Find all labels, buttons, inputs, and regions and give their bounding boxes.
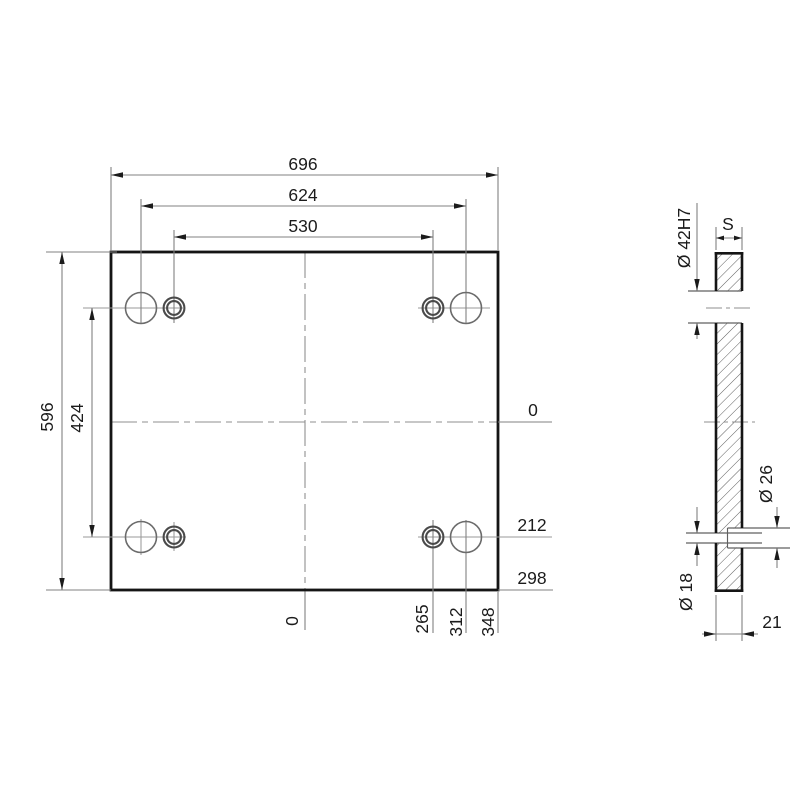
right-ordinates: 0 212 298 — [498, 400, 553, 590]
front-view: 696 624 530 596 424 — [37, 154, 553, 637]
dim-21-label: 21 — [762, 612, 781, 632]
side-view: S Ø 42H7 Ø 26 Ø 18 — [674, 203, 790, 641]
technical-drawing-page: 696 624 530 596 424 — [0, 0, 800, 800]
dim-s-label: S — [722, 214, 734, 234]
dim-42h7: Ø 42H7 — [674, 203, 700, 339]
dim-s: S — [716, 214, 742, 250]
dim-212-label: 212 — [517, 515, 546, 535]
bottom-ordinates: 0 265 312 348 — [282, 604, 498, 636]
datum-y-0-label: 0 — [528, 400, 538, 420]
dim-348-label: 348 — [478, 607, 498, 636]
dim-42h7-label: Ø 42H7 — [674, 208, 694, 268]
dim-26: Ø 26 — [756, 465, 780, 568]
plate-drawing-svg: 696 624 530 596 424 — [0, 0, 800, 800]
dim-424-label: 424 — [67, 403, 87, 432]
datum-x-0-label: 0 — [282, 616, 302, 626]
dim-596-label: 596 — [37, 402, 57, 431]
dim-530: 530 — [174, 216, 433, 240]
dim-312-label: 312 — [446, 607, 466, 636]
dim-530-label: 530 — [288, 216, 317, 236]
dim-265-label: 265 — [412, 604, 432, 633]
dim-696-label: 696 — [288, 154, 317, 174]
dim-624-label: 624 — [288, 185, 317, 205]
dim-18: Ø 18 — [676, 507, 700, 611]
dim-424: 424 — [67, 308, 95, 537]
hole-column-lines — [141, 199, 498, 633]
dim-298-label: 298 — [517, 568, 546, 588]
dim-18-label: Ø 18 — [676, 573, 696, 611]
dim-21: 21 — [702, 595, 782, 641]
dim-624: 624 — [141, 185, 466, 209]
dim-26-label: Ø 26 — [756, 465, 776, 503]
